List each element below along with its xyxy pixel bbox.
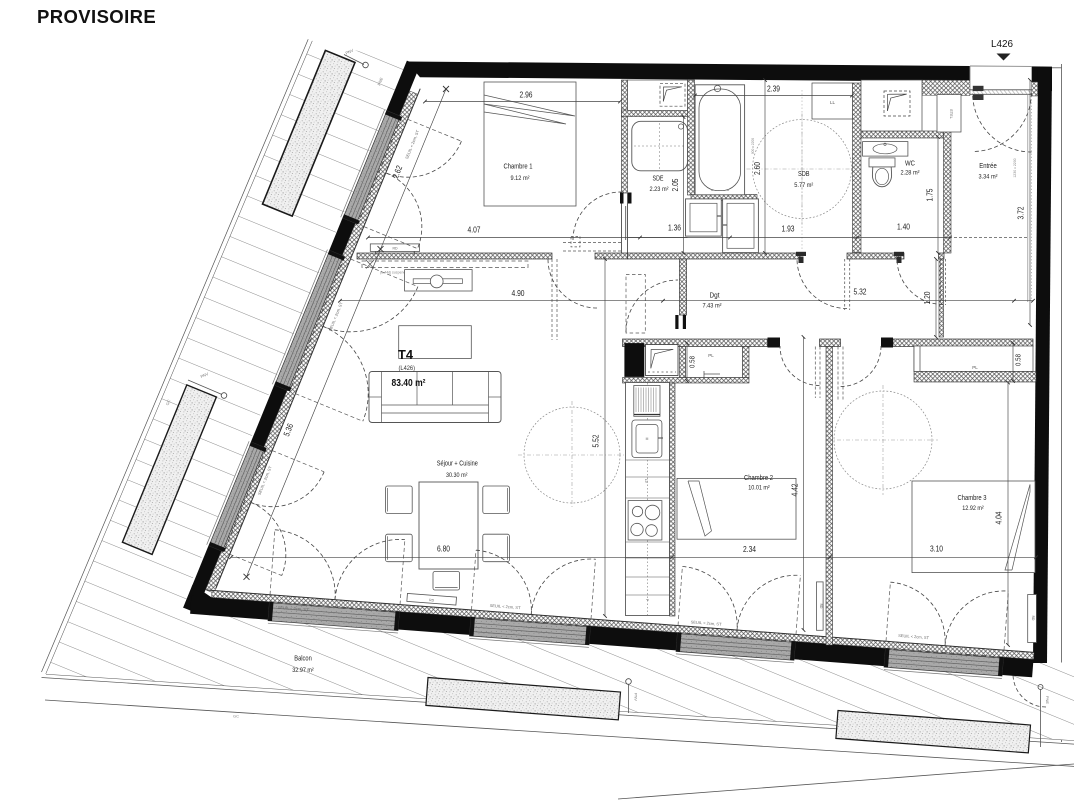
svg-text:4.90: 4.90 — [512, 288, 525, 298]
svg-text:32.97 m²: 32.97 m² — [292, 667, 314, 674]
svg-text:1.36: 1.36 — [668, 223, 681, 233]
svg-text:5.52: 5.52 — [591, 434, 601, 447]
svg-text:LV: LV — [644, 479, 648, 484]
svg-text:1.75: 1.75 — [925, 188, 935, 201]
svg-text:1230 x 2200: 1230 x 2200 — [1013, 158, 1017, 177]
svg-text:5.77 m²: 5.77 m² — [794, 182, 814, 189]
svg-text:9.12 m²: 9.12 m² — [511, 175, 531, 182]
svg-text:SDB: SDB — [798, 171, 810, 178]
svg-text:4.07: 4.07 — [468, 225, 481, 235]
svg-text:3.72: 3.72 — [1016, 206, 1026, 219]
svg-text:PNV: PNV — [634, 693, 639, 702]
svg-text:Entrée: Entrée — [979, 163, 997, 170]
svg-text:4.04: 4.04 — [994, 511, 1004, 524]
svg-text:1.20: 1.20 — [922, 291, 932, 304]
svg-text:PL: PL — [708, 353, 714, 358]
svg-text:900 x 2200: 900 x 2200 — [751, 138, 755, 154]
svg-text:F: F — [645, 599, 649, 601]
svg-text:0.58: 0.58 — [690, 356, 697, 368]
svg-text:LL: LL — [830, 100, 836, 105]
svg-text:WC: WC — [905, 161, 915, 168]
svg-text:RD: RD — [392, 247, 398, 251]
svg-text:Chambre 3: Chambre 3 — [958, 495, 987, 502]
svg-text:2.39: 2.39 — [767, 84, 780, 94]
svg-text:7.43 m²: 7.43 m² — [703, 303, 723, 310]
svg-text:Dgt: Dgt — [710, 293, 720, 300]
svg-text:T4: T4 — [398, 348, 413, 362]
svg-text:RD: RD — [1031, 616, 1035, 621]
svg-text:PROVISOIRE: PROVISOIRE — [37, 6, 156, 27]
svg-text:12.92 m²: 12.92 m² — [962, 505, 984, 512]
svg-text:(L426): (L426) — [399, 366, 416, 372]
svg-text:PNE: PNE — [1045, 696, 1050, 705]
svg-text:2.28 m²: 2.28 m² — [901, 170, 921, 177]
svg-text:Séjour + Cuisine: Séjour + Cuisine — [437, 461, 478, 468]
svg-text:1.93: 1.93 — [782, 224, 795, 234]
svg-text:SDE: SDE — [653, 176, 664, 183]
svg-text:83.40 m²: 83.40 m² — [392, 378, 427, 389]
svg-text:Balcon: Balcon — [294, 656, 312, 663]
svg-text:ETEL: ETEL — [949, 109, 953, 119]
svg-text:GC: GC — [233, 714, 239, 719]
svg-text:30.30 m²: 30.30 m² — [446, 472, 468, 479]
svg-text:Chambre 2: Chambre 2 — [744, 475, 773, 482]
svg-text:2.23 m²: 2.23 m² — [650, 186, 670, 193]
svg-text:M: M — [646, 437, 649, 441]
svg-text:10.01 m²: 10.01 m² — [748, 485, 770, 492]
svg-text:4.42: 4.42 — [790, 483, 800, 496]
svg-text:PL: PL — [972, 365, 978, 370]
svg-text:RD: RD — [429, 598, 435, 602]
svg-text:2.96: 2.96 — [520, 90, 533, 100]
svg-text:RD: RD — [819, 604, 823, 609]
svg-text:2.05: 2.05 — [670, 178, 680, 191]
svg-text:3.10: 3.10 — [930, 544, 943, 554]
svg-text:5.32: 5.32 — [854, 287, 867, 297]
svg-text:Chambre 1: Chambre 1 — [504, 164, 533, 171]
svg-text:2.34: 2.34 — [743, 544, 756, 554]
svg-text:2.60: 2.60 — [752, 162, 762, 175]
svg-text:0.58: 0.58 — [1016, 354, 1023, 366]
svg-text:L426: L426 — [991, 38, 1013, 50]
svg-text:1.40: 1.40 — [897, 222, 910, 232]
svg-text:3.34 m²: 3.34 m² — [979, 174, 999, 181]
svg-text:6.80: 6.80 — [437, 544, 450, 554]
